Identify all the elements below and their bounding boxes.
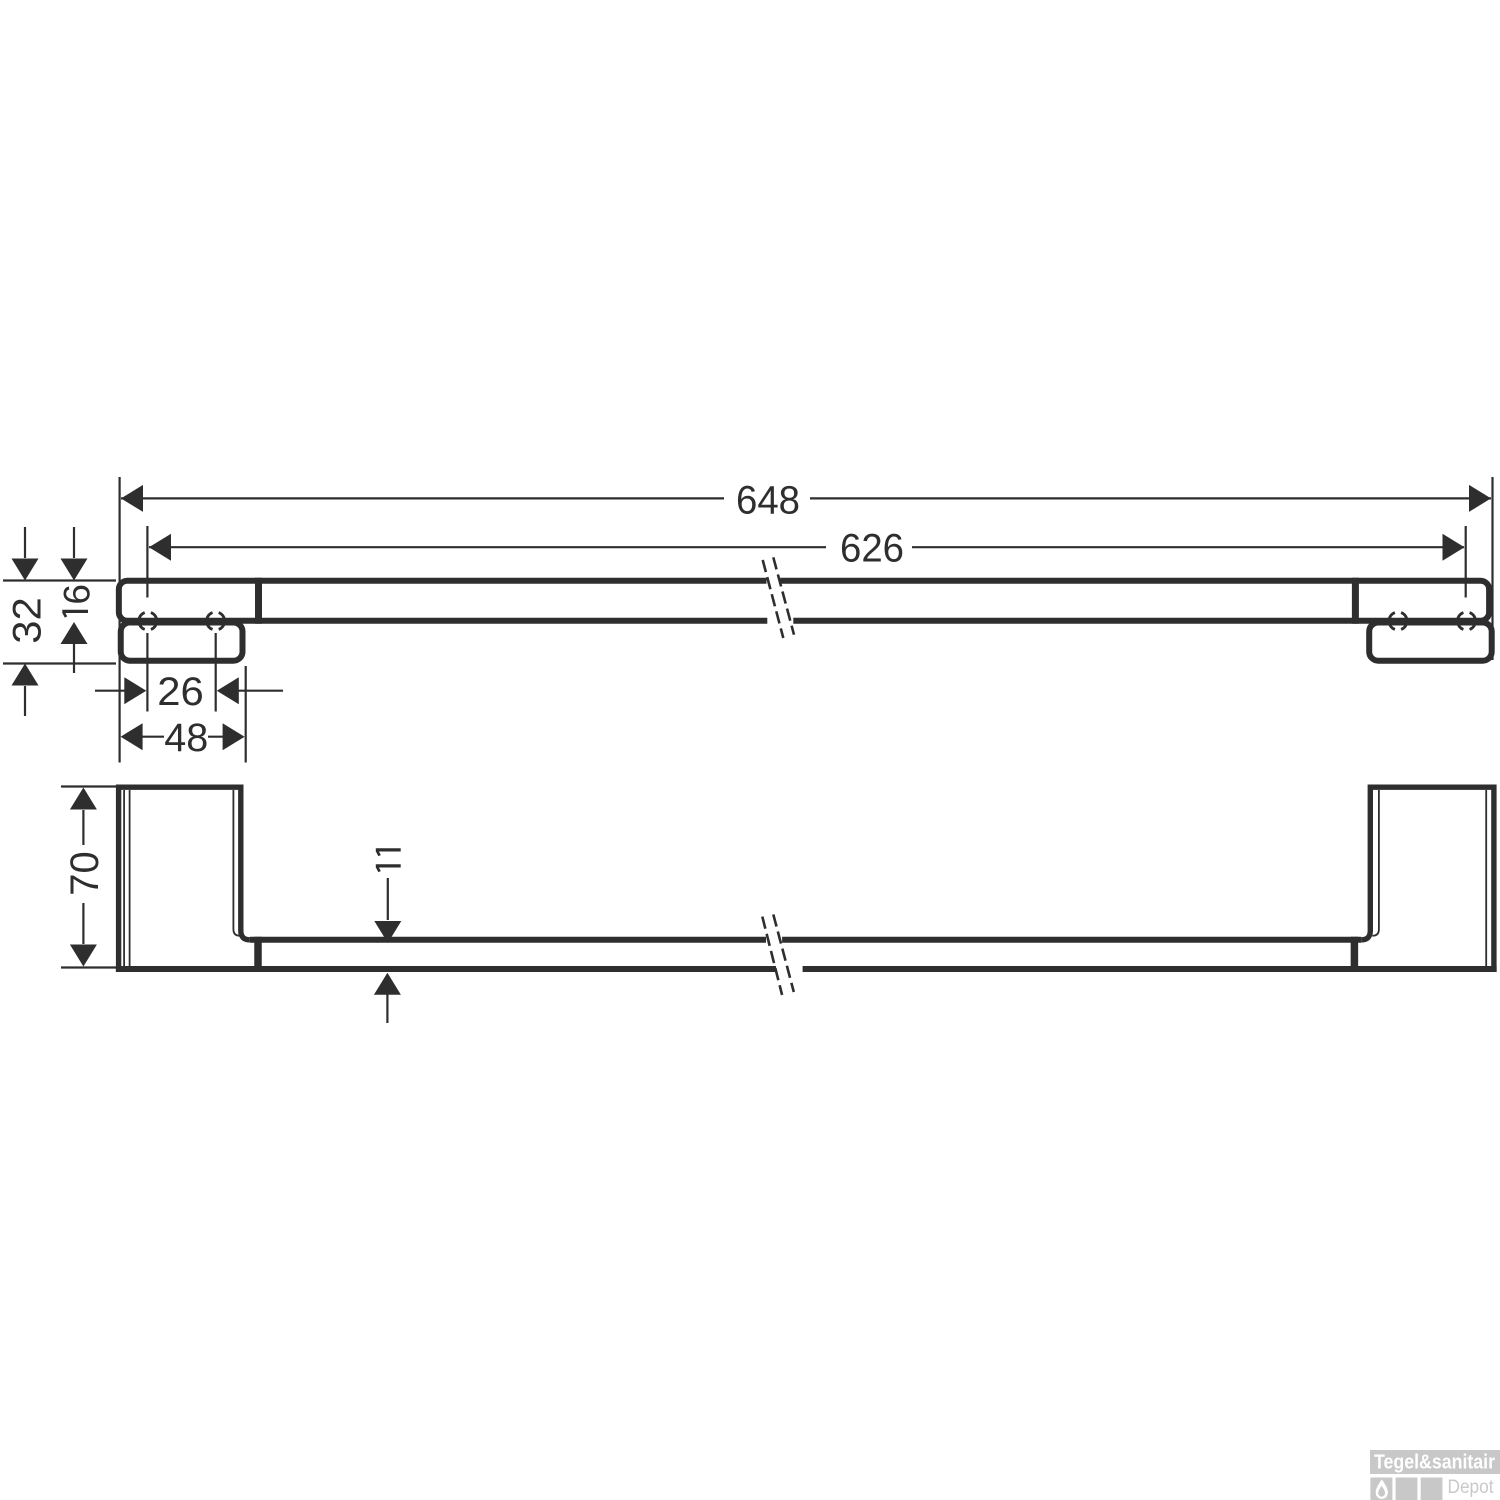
svg-text:648: 648 [736,479,800,523]
svg-text:626: 626 [840,527,904,571]
svg-text:70: 70 [63,851,107,896]
svg-text:Tegel&sanitair: Tegel&sanitair [1374,1452,1495,1474]
svg-text:6: 6 [56,584,97,605]
svg-text:48: 48 [164,716,208,760]
svg-text:Depot: Depot [1448,1476,1495,1498]
svg-text:26: 26 [157,670,204,714]
svg-text:32: 32 [6,597,50,644]
